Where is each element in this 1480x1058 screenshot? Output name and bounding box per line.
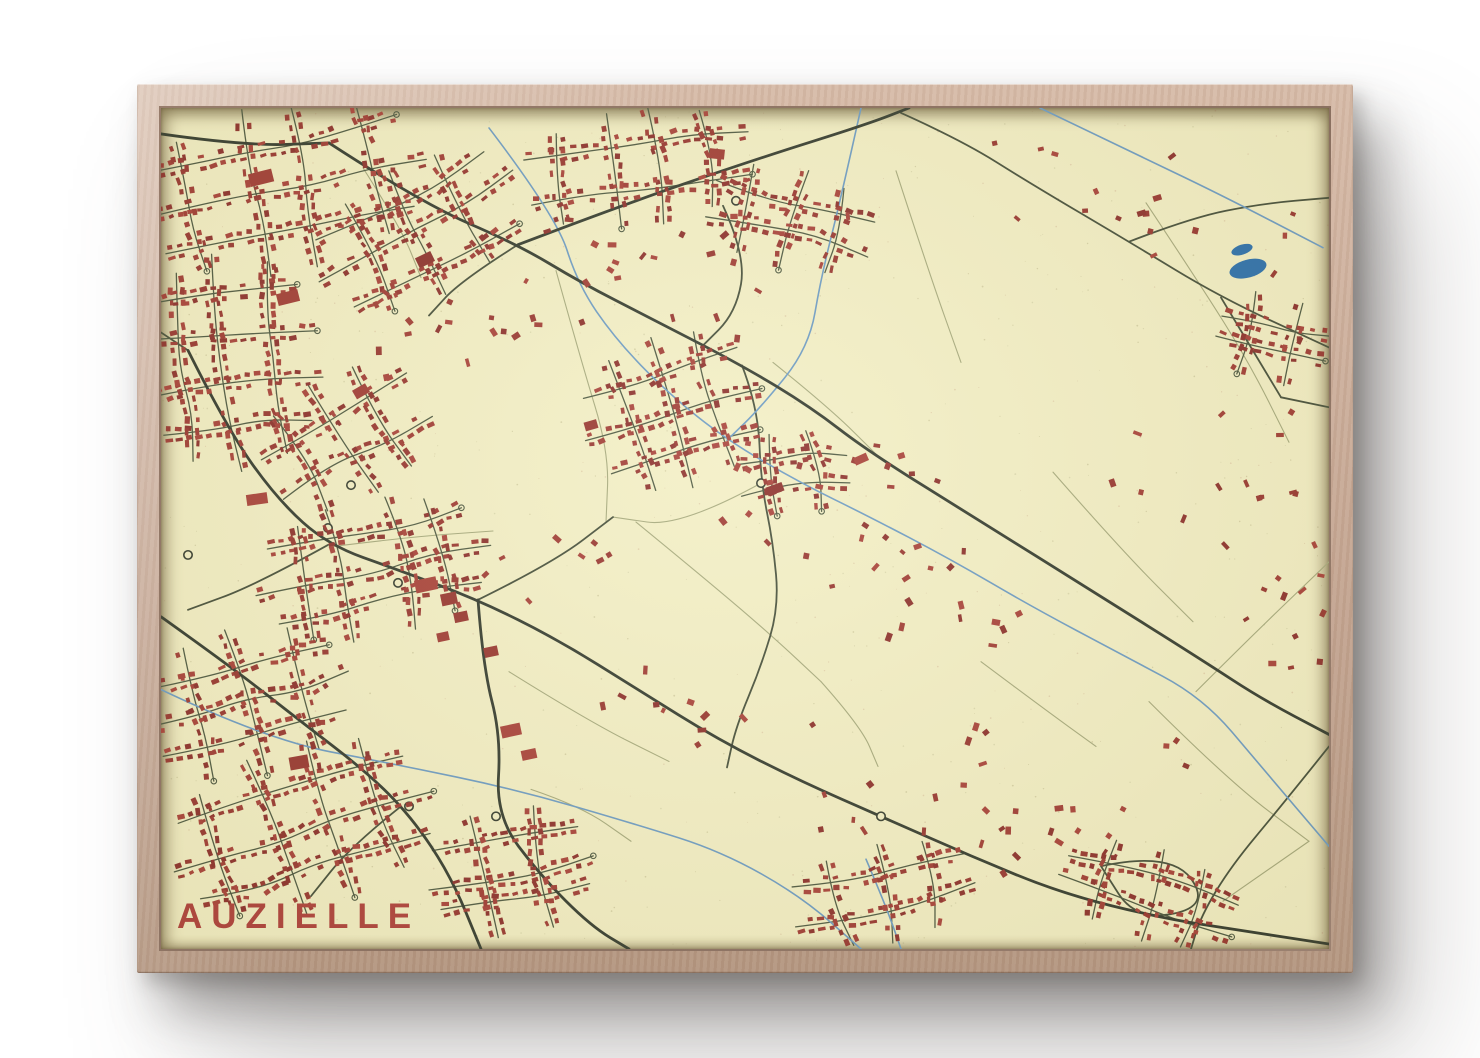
map-print: AUZIELLE xyxy=(161,108,1329,949)
wall: AUZIELLE xyxy=(0,0,1480,1058)
map-image xyxy=(161,108,1329,949)
poster-frame: AUZIELLE xyxy=(137,84,1353,973)
map-title: AUZIELLE xyxy=(177,897,420,937)
frame-inner-lip: AUZIELLE xyxy=(159,106,1331,951)
